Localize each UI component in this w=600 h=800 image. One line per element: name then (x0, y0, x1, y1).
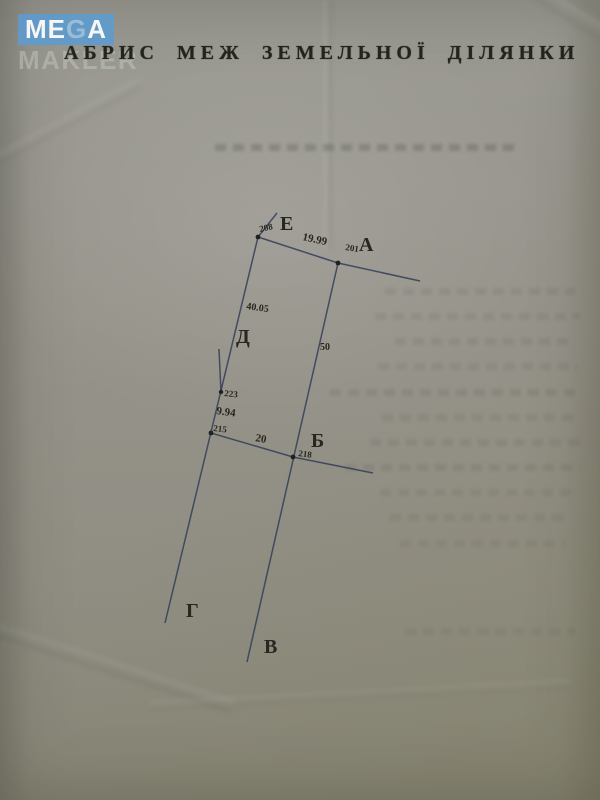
boundary-line-left-E-to-G (165, 237, 258, 623)
point-number-215: 215 (213, 423, 228, 434)
measurement-223-215: 9.94 (216, 405, 237, 420)
point-number-201: 201 (345, 242, 360, 254)
point-number-223: 223 (224, 388, 239, 399)
point-dot-A (336, 261, 341, 266)
point-dot-223 (219, 390, 223, 394)
point-dot-E (256, 235, 261, 240)
boundary-line-top-E-to-A (258, 237, 420, 281)
measurement-215-B: 20 (254, 432, 267, 446)
land-plot-sketch: Е А Д Б Г В 208 201 223 215 218 19.99 40… (0, 0, 600, 800)
point-dot-B (291, 455, 296, 460)
tick-at-point-223 (219, 349, 221, 392)
measurement-E-A: 19.99 (301, 231, 328, 248)
point-label-B: Б (311, 430, 324, 452)
point-label-A: А (359, 234, 374, 256)
boundary-line-right-A-to-V (247, 263, 338, 662)
point-number-208: 208 (258, 221, 274, 234)
measurement-E-223: 40.05 (246, 301, 270, 315)
point-label-D: Д (236, 326, 250, 348)
point-label-E: Е (280, 213, 293, 235)
photographed-document: MEGA MAKLER АБРИС МЕЖ ЗЕМЕЛЬНОЇ ДІЛЯНКИ … (0, 0, 600, 800)
point-label-V: В (264, 636, 277, 658)
measurement-A-B: 50 (320, 342, 330, 353)
point-number-218: 218 (298, 448, 313, 460)
point-label-G: Г (186, 600, 199, 622)
